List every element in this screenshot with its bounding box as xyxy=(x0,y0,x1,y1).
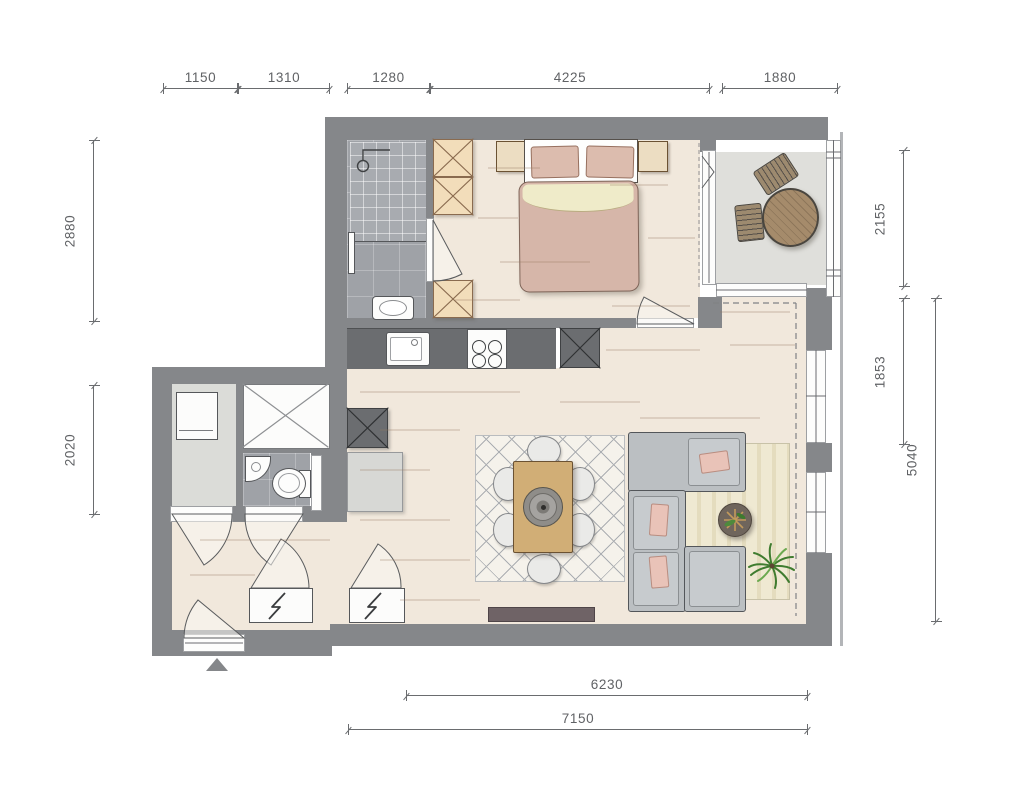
door-toilet-band xyxy=(245,506,303,522)
stove-burner-3 xyxy=(472,354,486,368)
nightstand-right xyxy=(638,141,668,172)
entrance-arrow xyxy=(206,658,228,671)
wall-hall-top xyxy=(152,367,347,384)
meter-cupboard-1 xyxy=(249,588,313,623)
coffee-table xyxy=(718,503,752,537)
kitchen-faucet xyxy=(411,339,418,346)
dimension-top-3: 1280 xyxy=(347,88,430,89)
nightstand-left xyxy=(496,141,526,172)
floor-plan: 1150 1310 1280 4225 1880 2880 2020 2155 … xyxy=(0,0,1024,800)
stove-burner-4 xyxy=(488,354,502,368)
sofa-pillow-2 xyxy=(649,503,669,536)
meter-cupboard-2 xyxy=(349,588,405,623)
bed-pillow-right xyxy=(586,145,635,178)
wall-door-stub-right xyxy=(303,506,347,522)
basin-drain xyxy=(251,462,261,472)
dimension-label: 4225 xyxy=(554,70,586,85)
wardrobe-3 xyxy=(433,280,473,318)
window-balcony-living xyxy=(716,283,807,297)
dimension-left-2: 2020 xyxy=(93,385,94,515)
washing-machine-panel xyxy=(179,430,213,431)
bathroom-toilet-bowl xyxy=(379,300,407,316)
window-balcony-right xyxy=(826,140,841,297)
balcony-chair-left xyxy=(734,203,765,243)
shower-area xyxy=(350,142,426,242)
wall-top xyxy=(325,117,828,140)
wall-right-pillar-2 xyxy=(806,443,832,472)
dining-table xyxy=(513,461,573,553)
dimension-bottom-1: 6230 xyxy=(406,695,808,696)
dimension-label: 6230 xyxy=(591,677,623,692)
dimension-label: 1880 xyxy=(764,70,796,85)
bed-sheet-fold xyxy=(522,183,633,212)
sofa-pillow-1 xyxy=(699,450,731,474)
dimension-label: 2880 xyxy=(62,215,77,247)
dining-chair-bottom xyxy=(527,554,561,584)
table-centerpiece xyxy=(523,487,563,527)
wall-right-pillar-3 xyxy=(806,553,832,624)
sofa-cushion-4 xyxy=(689,551,740,607)
door-bedroom-band xyxy=(637,318,694,328)
dimension-left-1: 2880 xyxy=(93,140,94,322)
shaft-white xyxy=(243,384,330,449)
dimension-top-5: 1880 xyxy=(722,88,838,89)
wall-right-pillar-1 xyxy=(806,288,832,350)
dimension-top-2: 1310 xyxy=(238,88,330,89)
wall-corner-pillar xyxy=(698,297,722,328)
window-right-1 xyxy=(806,350,826,443)
dimension-label: 1280 xyxy=(372,70,404,85)
wall-door-stub xyxy=(233,506,245,522)
dimension-right-3: 5040 xyxy=(935,298,936,622)
wall-left-lower xyxy=(152,384,172,656)
door-entrance-band xyxy=(183,634,245,652)
radiator xyxy=(348,232,355,274)
kitchen-counter xyxy=(347,328,556,369)
wall-storage-divider xyxy=(236,384,243,513)
living-floor-upper-right xyxy=(713,297,806,372)
stove-burner-1 xyxy=(472,340,486,354)
sofa-pillow-3 xyxy=(649,555,670,588)
dimension-label: 5040 xyxy=(904,444,919,476)
door-bathroom-band xyxy=(426,218,434,282)
stove-burner-2 xyxy=(488,340,502,354)
door-bedroom-balcony xyxy=(702,150,716,285)
sideboard xyxy=(488,607,595,622)
bed-blanket xyxy=(518,180,639,292)
shaft-dark xyxy=(347,408,388,448)
dimension-top-1: 1150 xyxy=(163,88,238,89)
dimension-label: 7150 xyxy=(562,711,594,726)
dimension-right-2: 1853 xyxy=(903,298,904,445)
dimension-label: 1853 xyxy=(872,355,887,387)
dimension-label: 1150 xyxy=(185,70,216,85)
wardrobe-2 xyxy=(433,177,473,215)
dimension-right-1: 2155 xyxy=(903,150,904,287)
dimension-bottom-2: 7150 xyxy=(348,729,808,730)
dimension-label: 2155 xyxy=(872,202,887,234)
dimension-label: 1310 xyxy=(268,70,300,85)
living-floor-strip xyxy=(600,328,713,370)
hall-closet xyxy=(347,452,403,512)
wall-living-bottom xyxy=(330,624,832,646)
bed-pillow-left xyxy=(531,145,580,178)
window-right-2 xyxy=(806,472,826,553)
washing-machine xyxy=(176,392,218,440)
dimension-label: 2020 xyxy=(62,434,77,466)
dimension-top-4: 4225 xyxy=(430,88,710,89)
toilet-seat xyxy=(278,473,300,493)
niche-band xyxy=(311,455,322,511)
wall-left-upper xyxy=(325,140,347,384)
kitchen-tall-unit xyxy=(560,328,600,368)
balcony-table xyxy=(762,188,819,247)
wardrobe-1 xyxy=(433,139,473,177)
door-storage-band xyxy=(170,506,233,522)
